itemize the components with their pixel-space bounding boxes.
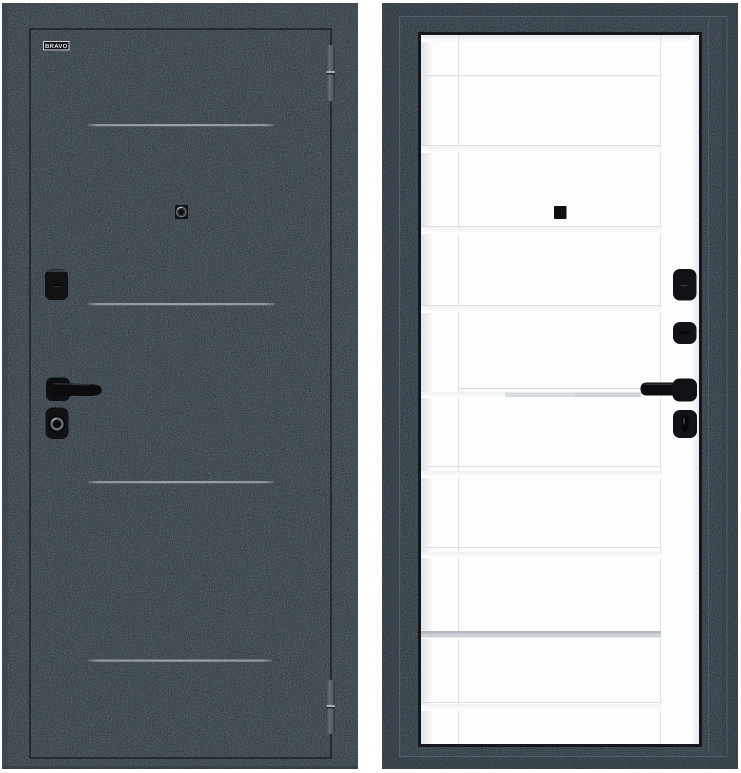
svg-text:BRAVO: BRAVO [45,43,68,50]
